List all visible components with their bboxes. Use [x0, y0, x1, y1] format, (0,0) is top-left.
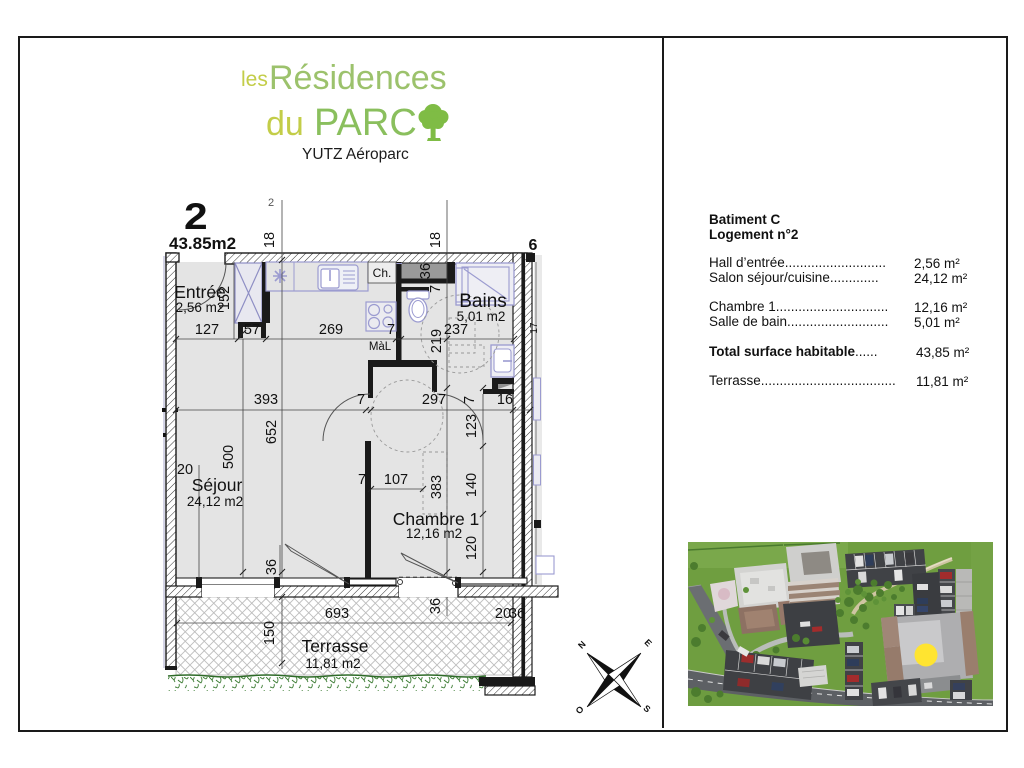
- svg-text:6: 6: [529, 237, 538, 254]
- svg-text:693: 693: [325, 606, 349, 622]
- svg-text:E: E: [642, 637, 653, 648]
- svg-text:MàL: MàL: [369, 341, 392, 353]
- svg-text:219: 219: [429, 329, 445, 353]
- svg-text:36: 36: [264, 559, 280, 575]
- svg-text:393: 393: [254, 392, 278, 408]
- svg-text:5,01 m2: 5,01 m2: [457, 309, 506, 324]
- svg-text:120: 120: [464, 536, 480, 560]
- svg-text:20: 20: [177, 462, 193, 478]
- svg-text:2,56 m2: 2,56 m2: [176, 300, 225, 315]
- svg-text:11,81 m2: 11,81 m2: [305, 656, 360, 671]
- svg-text:140: 140: [464, 473, 480, 497]
- svg-text:36: 36: [428, 598, 444, 614]
- svg-text:7: 7: [358, 472, 366, 488]
- svg-text:18: 18: [262, 232, 278, 248]
- svg-text:Séjour: Séjour: [192, 475, 243, 495]
- svg-text:297: 297: [422, 392, 446, 408]
- svg-text:S: S: [641, 703, 652, 715]
- svg-text:383: 383: [429, 475, 445, 499]
- svg-text:24,12 m2: 24,12 m2: [187, 494, 243, 509]
- svg-text:7: 7: [387, 322, 395, 338]
- svg-text:500: 500: [221, 445, 237, 469]
- svg-text:18: 18: [428, 232, 444, 248]
- svg-text:269: 269: [319, 322, 343, 338]
- svg-text:123: 123: [464, 414, 480, 438]
- svg-text:7: 7: [357, 392, 365, 408]
- svg-text:107: 107: [384, 472, 408, 488]
- svg-text:652: 652: [264, 420, 280, 444]
- svg-text:7: 7: [428, 285, 444, 293]
- svg-text:150: 150: [262, 621, 278, 645]
- svg-text:17: 17: [529, 322, 540, 334]
- svg-text:Entrée: Entrée: [174, 282, 226, 302]
- svg-text:7: 7: [462, 396, 478, 404]
- svg-text:N: N: [576, 639, 588, 651]
- svg-text:12,16 m2: 12,16 m2: [406, 526, 462, 541]
- svg-text:36: 36: [509, 606, 525, 622]
- svg-text:Terrasse: Terrasse: [301, 636, 368, 656]
- svg-text:O: O: [574, 704, 586, 716]
- svg-text:2: 2: [268, 197, 274, 209]
- svg-text:237: 237: [444, 322, 468, 338]
- svg-text:36: 36: [418, 263, 434, 279]
- svg-text:Ch.: Ch.: [373, 266, 392, 280]
- svg-text:127: 127: [195, 322, 219, 338]
- svg-text:16: 16: [497, 392, 513, 408]
- svg-text:57: 57: [244, 322, 260, 338]
